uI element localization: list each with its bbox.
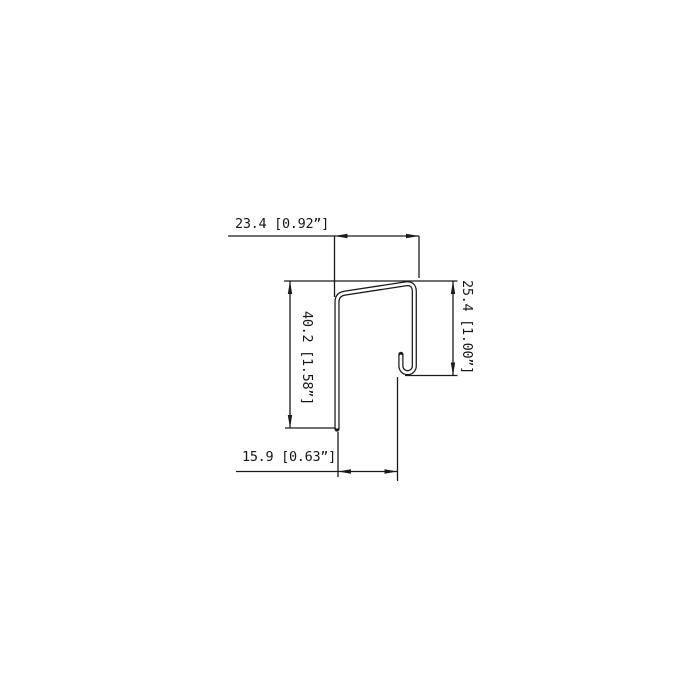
- arrowhead-up: [451, 281, 455, 294]
- dim-label-left-height: 40.2 [1.58”]: [299, 311, 313, 405]
- arrowhead-down: [288, 415, 292, 428]
- drawing-canvas: 23.4 [0.92”] 40.2 [1.58”] 25.4 [1.00”] 1…: [0, 0, 700, 700]
- dim-label-top-width: 23.4 [0.92”]: [235, 218, 329, 232]
- dim-label-right-height: 25.4 [1.00”]: [459, 280, 473, 374]
- arrowhead-up: [288, 281, 292, 294]
- arrowhead-right: [406, 234, 419, 238]
- arrowhead-down: [451, 363, 455, 376]
- dim-label-bottom-width: 15.9 [0.63”]: [242, 451, 336, 465]
- arrowhead-left: [335, 234, 348, 238]
- profile-outline: [337, 284, 414, 429]
- profile-drawing-svg: [0, 0, 700, 700]
- arrowhead-left: [338, 469, 351, 473]
- arrowhead-right: [385, 469, 398, 473]
- dimension-bottom-width: [236, 377, 398, 481]
